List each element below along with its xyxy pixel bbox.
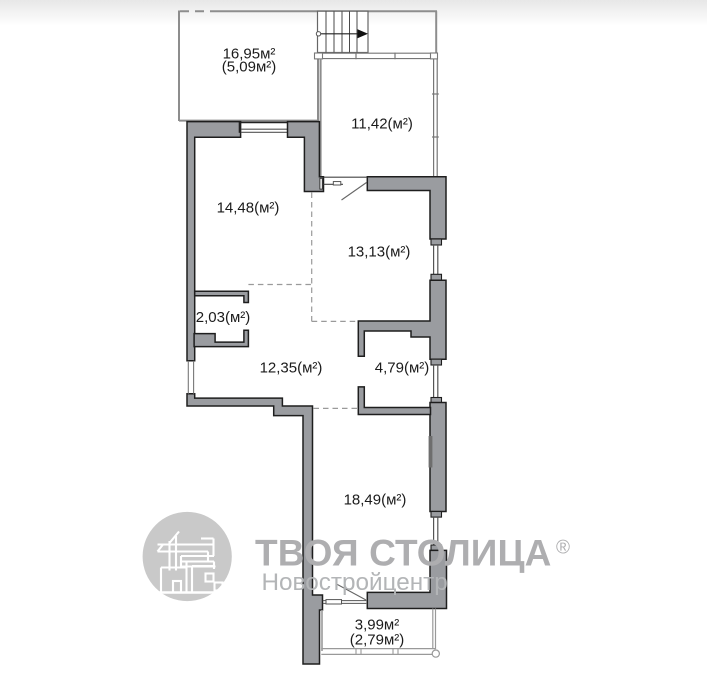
svg-text:14,48(м²): 14,48(м²) [217,199,280,216]
svg-text:2,03(м²): 2,03(м²) [196,309,251,326]
svg-text:18,49(м²): 18,49(м²) [344,491,407,508]
svg-text:Новостройцентр: Новостройцентр [262,569,448,596]
svg-text:ТВОЯ СТОЛИЦА: ТВОЯ СТОЛИЦА [255,533,551,574]
svg-text:(5,09м²): (5,09м²) [222,58,277,75]
svg-text:11,42(м²): 11,42(м²) [351,115,413,132]
svg-text:13,13(м²): 13,13(м²) [348,243,411,260]
svg-text:4,79(м²): 4,79(м²) [375,359,430,376]
svg-text:(2,79м²): (2,79м²) [350,631,405,648]
svg-text:®: ® [556,538,570,559]
svg-text:12,35(м²): 12,35(м²) [260,359,323,376]
